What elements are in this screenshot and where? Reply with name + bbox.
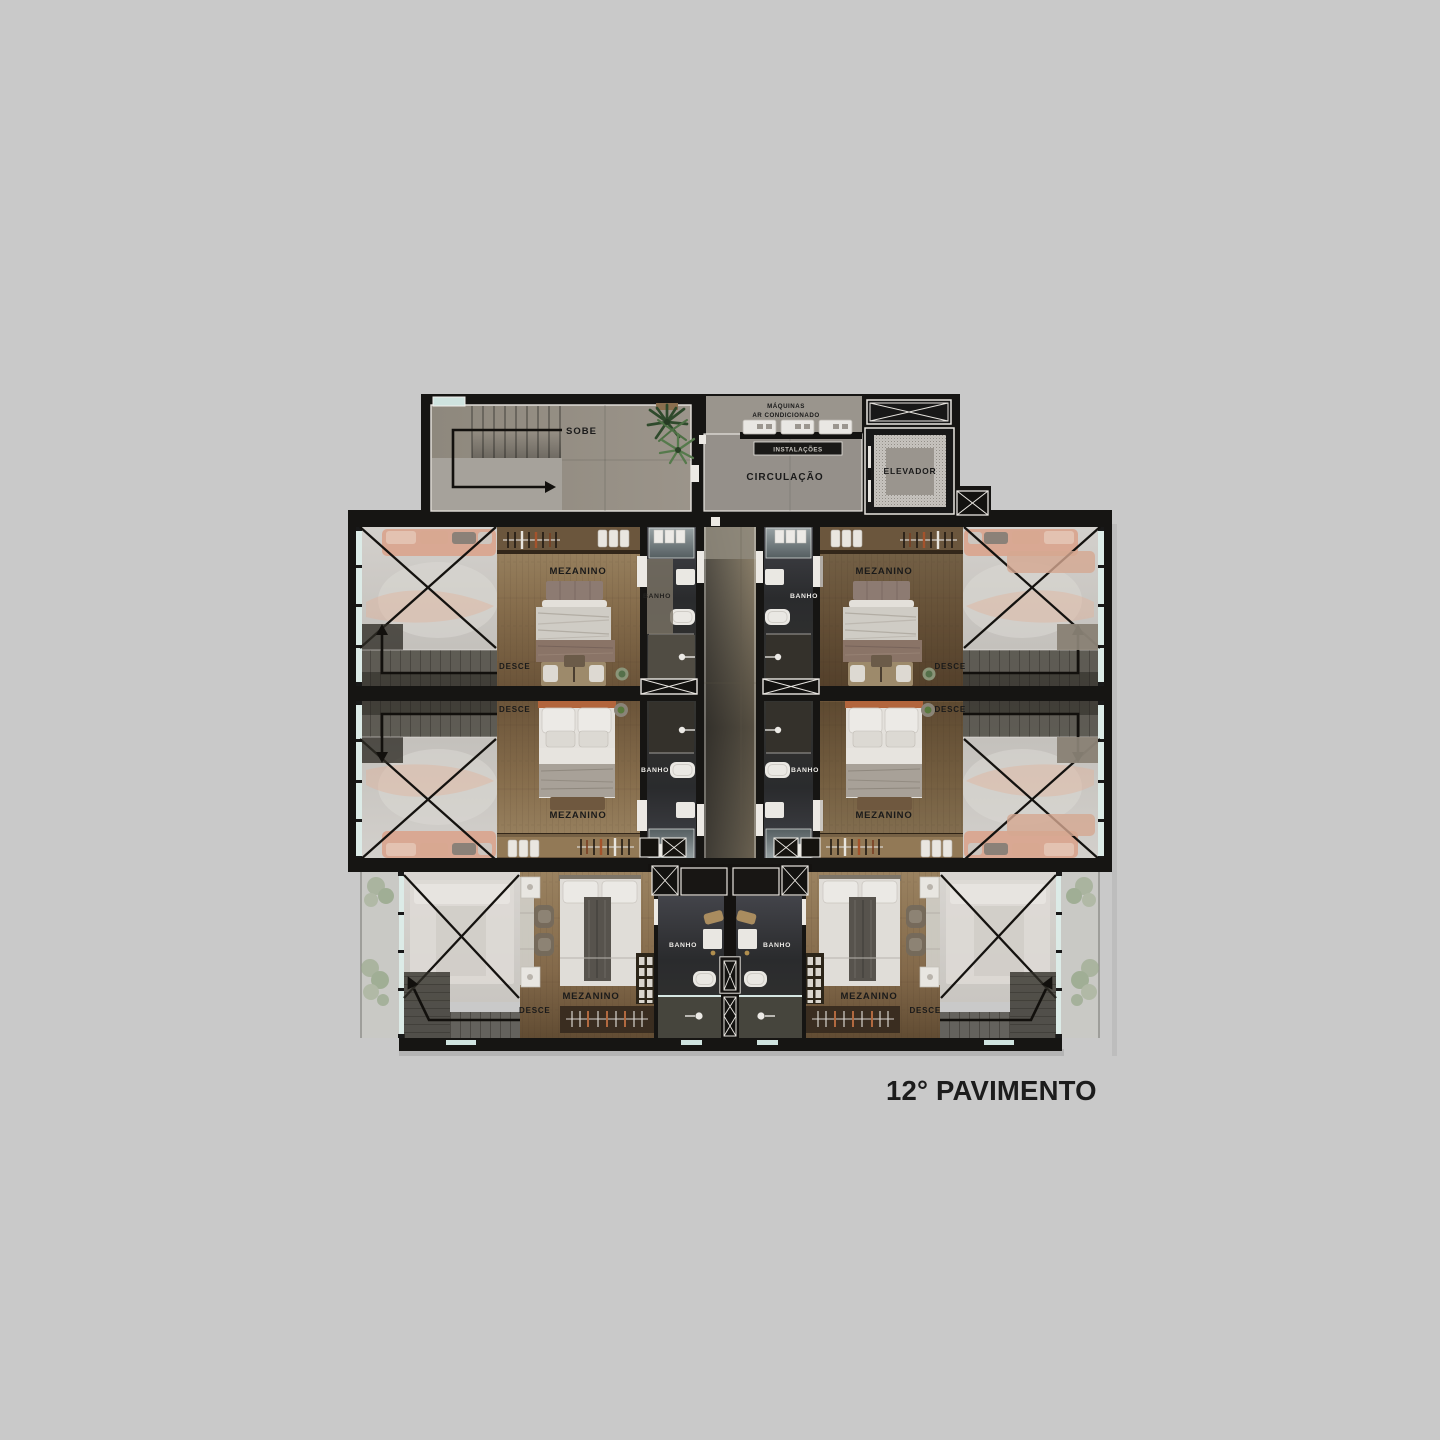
svg-text:MEZANINO: MEZANINO <box>855 566 912 577</box>
svg-text:BANHO: BANHO <box>641 767 669 774</box>
svg-text:MEZANINO: MEZANINO <box>549 810 606 821</box>
svg-text:BANHO: BANHO <box>643 593 671 600</box>
svg-text:MEZANINO: MEZANINO <box>562 991 619 1002</box>
svg-text:DESCE: DESCE <box>934 662 966 671</box>
svg-text:AR CONDICIONADO: AR CONDICIONADO <box>752 412 819 419</box>
svg-text:SOBE: SOBE <box>566 426 597 437</box>
svg-text:BANHO: BANHO <box>791 767 819 774</box>
svg-text:MEZANINO: MEZANINO <box>840 991 897 1002</box>
svg-text:BANHO: BANHO <box>763 942 791 949</box>
svg-text:BANHO: BANHO <box>669 942 697 949</box>
svg-text:DESCE: DESCE <box>499 705 531 714</box>
svg-text:BANHO: BANHO <box>790 593 818 600</box>
svg-text:DESCE: DESCE <box>934 705 966 714</box>
svg-text:MEZANINO: MEZANINO <box>549 566 606 577</box>
svg-text:12° PAVIMENTO: 12° PAVIMENTO <box>886 1075 1097 1106</box>
svg-text:DESCE: DESCE <box>909 1006 941 1015</box>
svg-text:DESCE: DESCE <box>499 662 531 671</box>
svg-text:ELEVADOR: ELEVADOR <box>884 466 937 476</box>
svg-text:MEZANINO: MEZANINO <box>855 810 912 821</box>
svg-text:CIRCULAÇÃO: CIRCULAÇÃO <box>746 470 823 483</box>
svg-text:MÁQUINAS: MÁQUINAS <box>767 403 805 410</box>
svg-text:INSTALAÇÕES: INSTALAÇÕES <box>773 447 822 454</box>
svg-text:DESCE: DESCE <box>519 1006 551 1015</box>
